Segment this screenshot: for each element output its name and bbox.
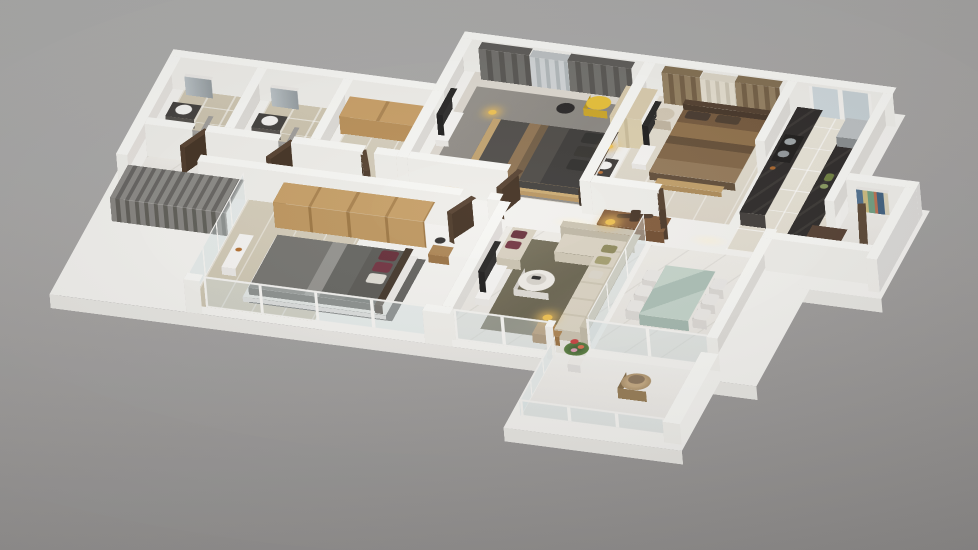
- apartment-3d-floor-plan: [0, 0, 978, 550]
